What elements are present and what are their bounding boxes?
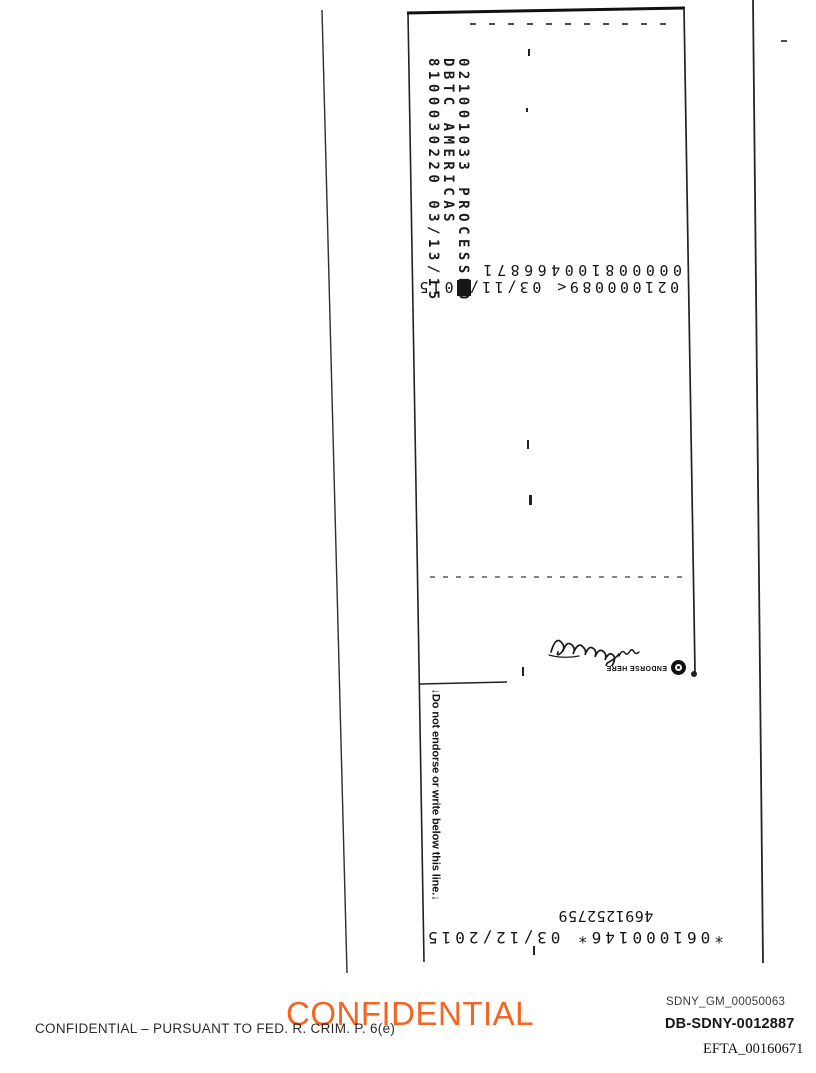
check-outline-lines: [0, 0, 816, 1073]
check-left-edge: [408, 13, 424, 962]
scan-tick-mark: [533, 946, 535, 955]
scanned-check-back-document: 021001033 PROCESSED DBTC AMERICAS 810003…: [0, 0, 816, 1073]
bank-processing-stamp: 021001033 PROCESSED DBTC AMERICAS 810003…: [425, 58, 470, 305]
micr-routing-and-date-bottom: *061000146* 03/12/2015: [424, 928, 724, 947]
check-outer-right-edge: [753, 0, 763, 963]
inner-edge-end-blob: [691, 671, 697, 677]
scan-tick-mark: [522, 667, 524, 676]
faint-dash-right: [781, 40, 791, 42]
stamp-routing-processed: 021001033 PROCESSED: [455, 58, 470, 305]
scan-tick-mark: [528, 49, 530, 56]
stamp-bank-name: DBTC AMERICAS: [440, 58, 455, 305]
check-inner-right-edge: [684, 8, 695, 672]
bates-number-efta: EFTA_00160671: [703, 1041, 803, 1058]
scan-tick-mark: [527, 440, 529, 449]
bates-number-sdny-gm: SDNY_GM_00050063: [666, 996, 785, 1008]
faint-dotted-mid-line: [430, 576, 688, 578]
scan-tick-mark: [529, 495, 532, 505]
endorse-here-stamp: ENDORSE HERE: [596, 657, 686, 679]
do-not-endorse-boundary-text: ↓Do not endorse or write below this line…: [425, 688, 441, 935]
ring-dot-icon: [671, 661, 686, 676]
bates-number-db-sdny: DB-SDNY-0012887: [665, 1016, 795, 1032]
micr-sequence-number: 000008100466871: [479, 261, 682, 279]
endorse-here-label: ENDORSE HERE: [606, 665, 667, 672]
left-skewed-scan-line: [322, 10, 347, 973]
faint-dash-row-top: [470, 23, 672, 25]
endorsement-area-boundary-line: [420, 682, 507, 684]
stamp-sequence-date: 8100030220 03/13/15: [425, 58, 440, 305]
check-top-edge: [407, 8, 685, 13]
confidential-watermark: CONFIDENTIAL: [286, 995, 534, 1033]
scan-tick-mark: [526, 108, 528, 112]
micr-routing-and-date: 021000089< 03/11/2015: [416, 278, 679, 296]
micr-account-number: 4691252759: [558, 907, 653, 925]
